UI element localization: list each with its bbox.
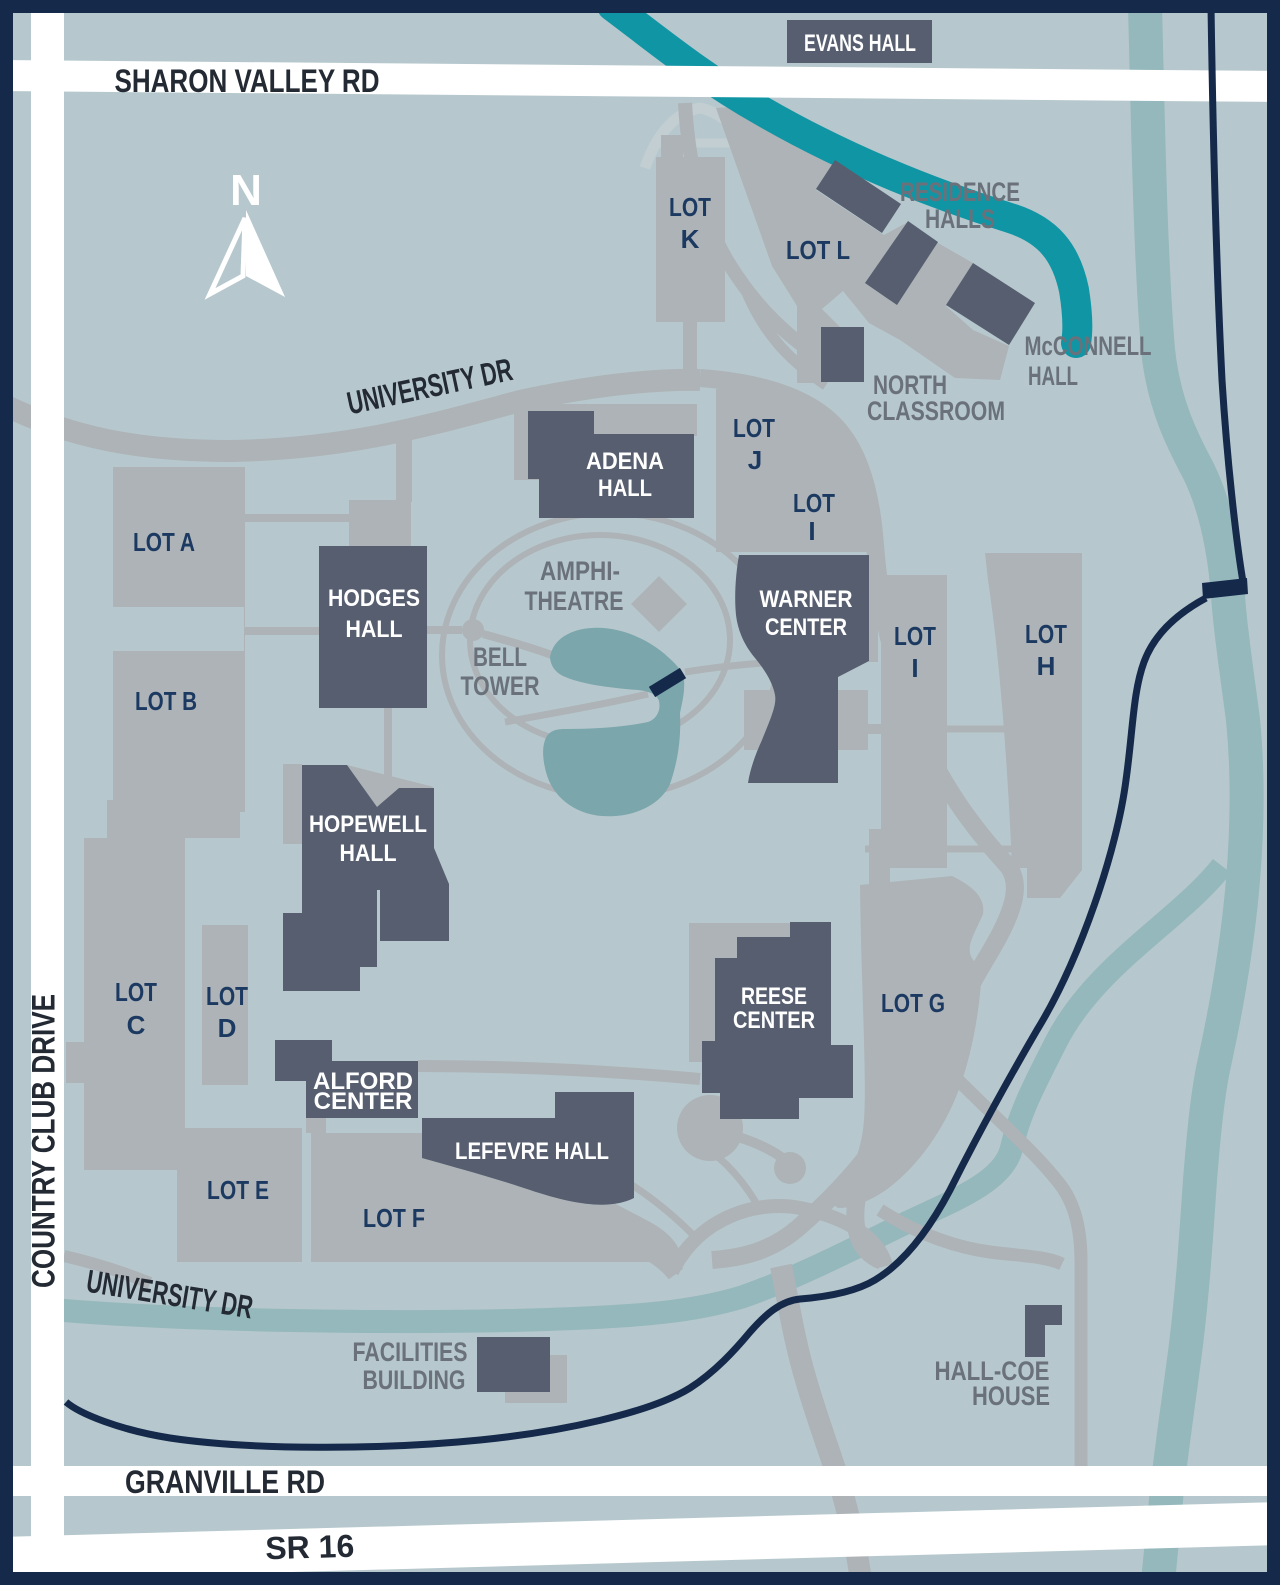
svg-text:HODGES: HODGES (328, 585, 420, 612)
svg-text:SR 16: SR 16 (265, 1528, 355, 1566)
svg-text:I: I (808, 516, 815, 546)
svg-text:EVANS HALL: EVANS HALL (804, 30, 916, 57)
svg-text:CENTER: CENTER (314, 1088, 413, 1115)
svg-text:CENTER: CENTER (765, 614, 847, 641)
svg-text:LOT A: LOT A (133, 527, 195, 557)
svg-text:TOWER: TOWER (461, 671, 540, 701)
svg-text:I: I (911, 653, 918, 683)
svg-text:K: K (681, 224, 700, 254)
svg-text:J: J (748, 445, 762, 475)
svg-text:LOT L: LOT L (786, 235, 850, 265)
svg-text:THEATRE: THEATRE (525, 586, 624, 616)
svg-text:AMPHI-: AMPHI- (540, 556, 620, 586)
svg-text:GRANVILLE RD: GRANVILLE RD (125, 1464, 325, 1500)
svg-text:N: N (230, 166, 262, 215)
svg-text:D: D (218, 1013, 237, 1043)
svg-text:BELL: BELL (473, 642, 527, 672)
svg-text:LOT: LOT (733, 413, 775, 443)
svg-text:BUILDING: BUILDING (363, 1365, 466, 1395)
svg-text:COUNTRY CLUB DRIVE: COUNTRY CLUB DRIVE (25, 994, 61, 1288)
svg-text:RESIDENCE: RESIDENCE (900, 177, 1020, 207)
svg-text:ADENA: ADENA (586, 448, 664, 475)
svg-text:WARNER: WARNER (760, 586, 853, 613)
svg-text:LOT: LOT (115, 977, 157, 1007)
svg-text:HOPEWELL: HOPEWELL (309, 811, 427, 838)
svg-text:SHARON VALLEY RD: SHARON VALLEY RD (115, 63, 380, 99)
svg-text:FACILITIES: FACILITIES (353, 1337, 468, 1367)
svg-text:LOT F: LOT F (363, 1203, 425, 1233)
svg-text:LOT: LOT (1025, 619, 1067, 649)
svg-text:LOT B: LOT B (135, 686, 197, 716)
svg-text:HOUSE: HOUSE (972, 1381, 1050, 1411)
svg-text:CENTER: CENTER (733, 1007, 815, 1034)
svg-text:LOT: LOT (894, 621, 936, 651)
svg-text:LOT: LOT (206, 981, 248, 1011)
svg-text:LOT: LOT (793, 488, 835, 518)
svg-text:CLASSROOM: CLASSROOM (867, 396, 1005, 426)
svg-text:LOT E: LOT E (207, 1175, 269, 1205)
svg-text:HALL: HALL (346, 616, 403, 643)
svg-text:McCONNELL: McCONNELL (1025, 331, 1152, 361)
svg-text:H: H (1037, 651, 1056, 681)
svg-text:HALL: HALL (340, 840, 397, 867)
svg-text:C: C (127, 1010, 146, 1040)
svg-text:LOT G: LOT G (881, 988, 945, 1018)
svg-text:REESE: REESE (741, 983, 807, 1010)
svg-text:LOT: LOT (669, 192, 711, 222)
svg-text:LEFEVRE HALL: LEFEVRE HALL (455, 1138, 609, 1165)
svg-text:HALL: HALL (598, 475, 652, 502)
svg-text:HALL: HALL (1028, 361, 1078, 391)
svg-text:HALLS: HALLS (925, 204, 995, 234)
